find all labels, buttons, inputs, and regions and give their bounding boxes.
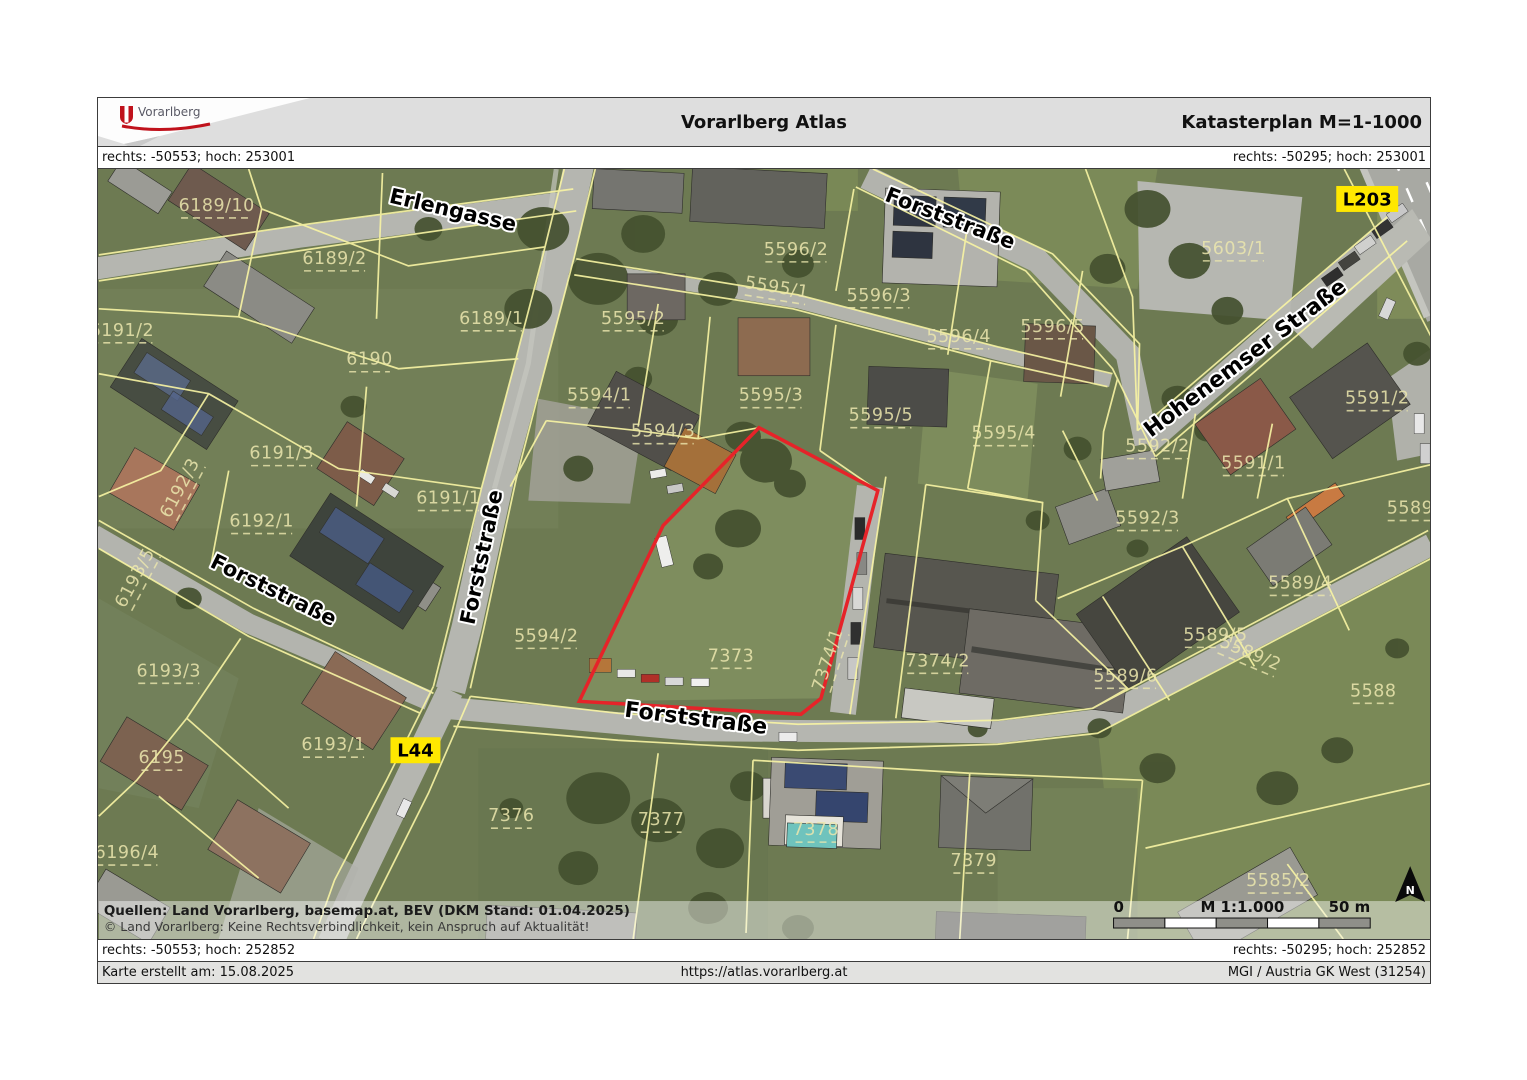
parcel-label-5585-2: 5585/2 (1246, 871, 1310, 893)
parcel-label-5596-4: 5596/4 (927, 327, 991, 349)
parcel-label-7379: 7379 (950, 851, 996, 873)
katasterplan-page: Vorarlberg Vorarlberg Atlas Katasterplan… (0, 0, 1527, 1080)
parcel-label-5595-4: 5595/4 (971, 424, 1035, 446)
sources-line2: © Land Vorarlberg: Keine Rechtsverbindli… (104, 919, 590, 934)
parcel-label-5589-: 5589/ (1387, 499, 1431, 521)
parcel-label-5588: 5588 (1350, 681, 1396, 703)
parcel-label-6191-1: 6191/1 (416, 489, 480, 511)
header-bar: Vorarlberg Vorarlberg Atlas Katasterplan… (97, 97, 1431, 147)
svg-text:L44: L44 (397, 741, 433, 762)
parcel-label-6191-3: 6191/3 (249, 444, 313, 466)
parcel-label-6193-1: 6193/1 (301, 735, 365, 757)
scale-zero: 0 (1114, 898, 1124, 916)
parcel-label-7376: 7376 (488, 806, 534, 828)
svg-text:6189/2: 6189/2 (302, 249, 366, 269)
coord-top-right: rechts: -50295; hoch: 253001 (1233, 150, 1426, 165)
parcel-label-5595-2: 5595/2 (601, 309, 665, 331)
parcel-label-5592-3: 5592/3 (1115, 509, 1179, 531)
parcel-label-5591-2: 5591/2 (1345, 389, 1409, 411)
svg-text:5596/3: 5596/3 (847, 286, 911, 306)
svg-text:7379: 7379 (950, 851, 996, 871)
parcel-label-6190: 6190 (346, 350, 392, 372)
parcel-label-5603-1: 5603/1 (1201, 239, 1265, 261)
coord-bottom-left: rechts: -50553; hoch: 252852 (102, 943, 295, 958)
parcel-label-6191-2: 6191/2 (98, 321, 154, 343)
map-viewport[interactable]: 6189/106189/26189/161906191/26191/36192/… (97, 169, 1431, 940)
road-badge-L203: L203 (1336, 186, 1398, 212)
parcel-label-7377: 7377 (638, 810, 684, 832)
svg-text:6191/1: 6191/1 (416, 489, 480, 509)
parcel-label-7374-2: 7374/2 (906, 651, 970, 673)
svg-text:6195: 6195 (139, 748, 185, 768)
parcel-label-5595-3: 5595/3 (739, 386, 803, 408)
svg-text:5592/3: 5592/3 (1115, 509, 1179, 529)
svg-text:6192/1: 6192/1 (229, 512, 293, 532)
svg-text:7378: 7378 (793, 820, 839, 840)
coord-bottom-right: rechts: -50295; hoch: 252852 (1233, 943, 1426, 958)
aerial-map: 6189/106189/26189/161906191/26191/36192/… (98, 169, 1431, 939)
parcel-label-5591-1: 5591/1 (1221, 454, 1285, 476)
parcel-label-6193-3: 6193/3 (137, 661, 201, 683)
atlas-url[interactable]: https://atlas.vorarlberg.at (98, 965, 1430, 980)
svg-text:5596/5: 5596/5 (1020, 317, 1084, 337)
parcel-label-5594-1: 5594/1 (567, 386, 631, 408)
svg-text:7374/2: 7374/2 (906, 651, 970, 671)
svg-text:5596/2: 5596/2 (764, 240, 828, 260)
north-label: N (1406, 884, 1415, 897)
footer-bar: Karte erstellt am: 15.08.2025 https://at… (97, 962, 1431, 984)
svg-text:7373: 7373 (708, 646, 754, 666)
svg-text:5595/2: 5595/2 (601, 309, 665, 329)
sources-line1: Quellen: Land Vorarlberg, basemap.at, BE… (104, 903, 630, 919)
coordinate-strip-bottom: rechts: -50553; hoch: 252852 rechts: -50… (97, 939, 1431, 962)
svg-text:5595/5: 5595/5 (849, 406, 913, 426)
scale-ratio: M 1:1.000 (1200, 898, 1284, 916)
parcel-label-6195: 6195 (139, 748, 185, 770)
svg-text:5594/2: 5594/2 (514, 626, 578, 646)
svg-text:5603/1: 5603/1 (1201, 239, 1265, 259)
parcel-label-6192-1: 6192/1 (229, 512, 293, 534)
parcel-label-5596-5: 5596/5 (1020, 317, 1084, 339)
parcel-label-5595-5: 5595/5 (849, 406, 913, 428)
svg-text:6189/1: 6189/1 (459, 309, 523, 329)
parcel-label-5594-2: 5594/2 (514, 626, 578, 648)
svg-text:6190: 6190 (346, 350, 392, 370)
map-type-title: Katasterplan M=1-1000 (1181, 112, 1422, 133)
svg-text:5589/4: 5589/4 (1268, 573, 1332, 593)
svg-text:6191/3: 6191/3 (249, 444, 313, 464)
parcel-label-5596-3: 5596/3 (847, 286, 911, 308)
svg-text:7376: 7376 (488, 806, 534, 826)
svg-text:5585/2: 5585/2 (1246, 871, 1310, 891)
svg-text:5594/3: 5594/3 (631, 422, 695, 442)
svg-text:6189/10: 6189/10 (179, 196, 255, 216)
parcel-label-6189-1: 6189/1 (459, 309, 523, 331)
coordinate-strip-top: rechts: -50553; hoch: 253001 rechts: -50… (97, 147, 1431, 169)
parcel-label-7378: 7378 (793, 820, 839, 842)
scale-max: 50 m (1329, 898, 1371, 916)
parcel-label-6189-10: 6189/10 (179, 196, 255, 218)
parcel-label-6189-2: 6189/2 (302, 249, 366, 271)
svg-text:7377: 7377 (638, 810, 684, 830)
svg-text:5588: 5588 (1350, 681, 1396, 701)
parcel-label-5589-4: 5589/4 (1268, 573, 1332, 595)
svg-text:5595/4: 5595/4 (971, 424, 1035, 444)
svg-text:6193/3: 6193/3 (137, 661, 201, 681)
map-sheet: Vorarlberg Vorarlberg Atlas Katasterplan… (97, 97, 1431, 984)
svg-text:5589/6: 5589/6 (1093, 666, 1157, 686)
parcel-label-5589-6: 5589/6 (1093, 666, 1157, 688)
parcel-label-6196-4: 6196/4 (98, 843, 159, 865)
parcel-label-7373: 7373 (708, 646, 754, 668)
road-badge-L44: L44 (390, 737, 440, 763)
svg-text:5591/2: 5591/2 (1345, 389, 1409, 409)
parcel-label-5596-2: 5596/2 (764, 240, 828, 262)
svg-text:5595/3: 5595/3 (739, 386, 803, 406)
svg-text:5596/4: 5596/4 (927, 327, 991, 347)
svg-text:6193/1: 6193/1 (301, 735, 365, 755)
coord-top-left: rechts: -50553; hoch: 253001 (102, 150, 295, 165)
svg-text:5594/1: 5594/1 (567, 386, 631, 406)
svg-text:6196/4: 6196/4 (98, 843, 159, 863)
svg-text:5591/1: 5591/1 (1221, 454, 1285, 474)
svg-text:L203: L203 (1343, 189, 1392, 210)
svg-text:6191/2: 6191/2 (98, 321, 154, 341)
parcel-label-5594-3: 5594/3 (631, 422, 695, 444)
svg-text:5589/: 5589/ (1387, 499, 1431, 519)
